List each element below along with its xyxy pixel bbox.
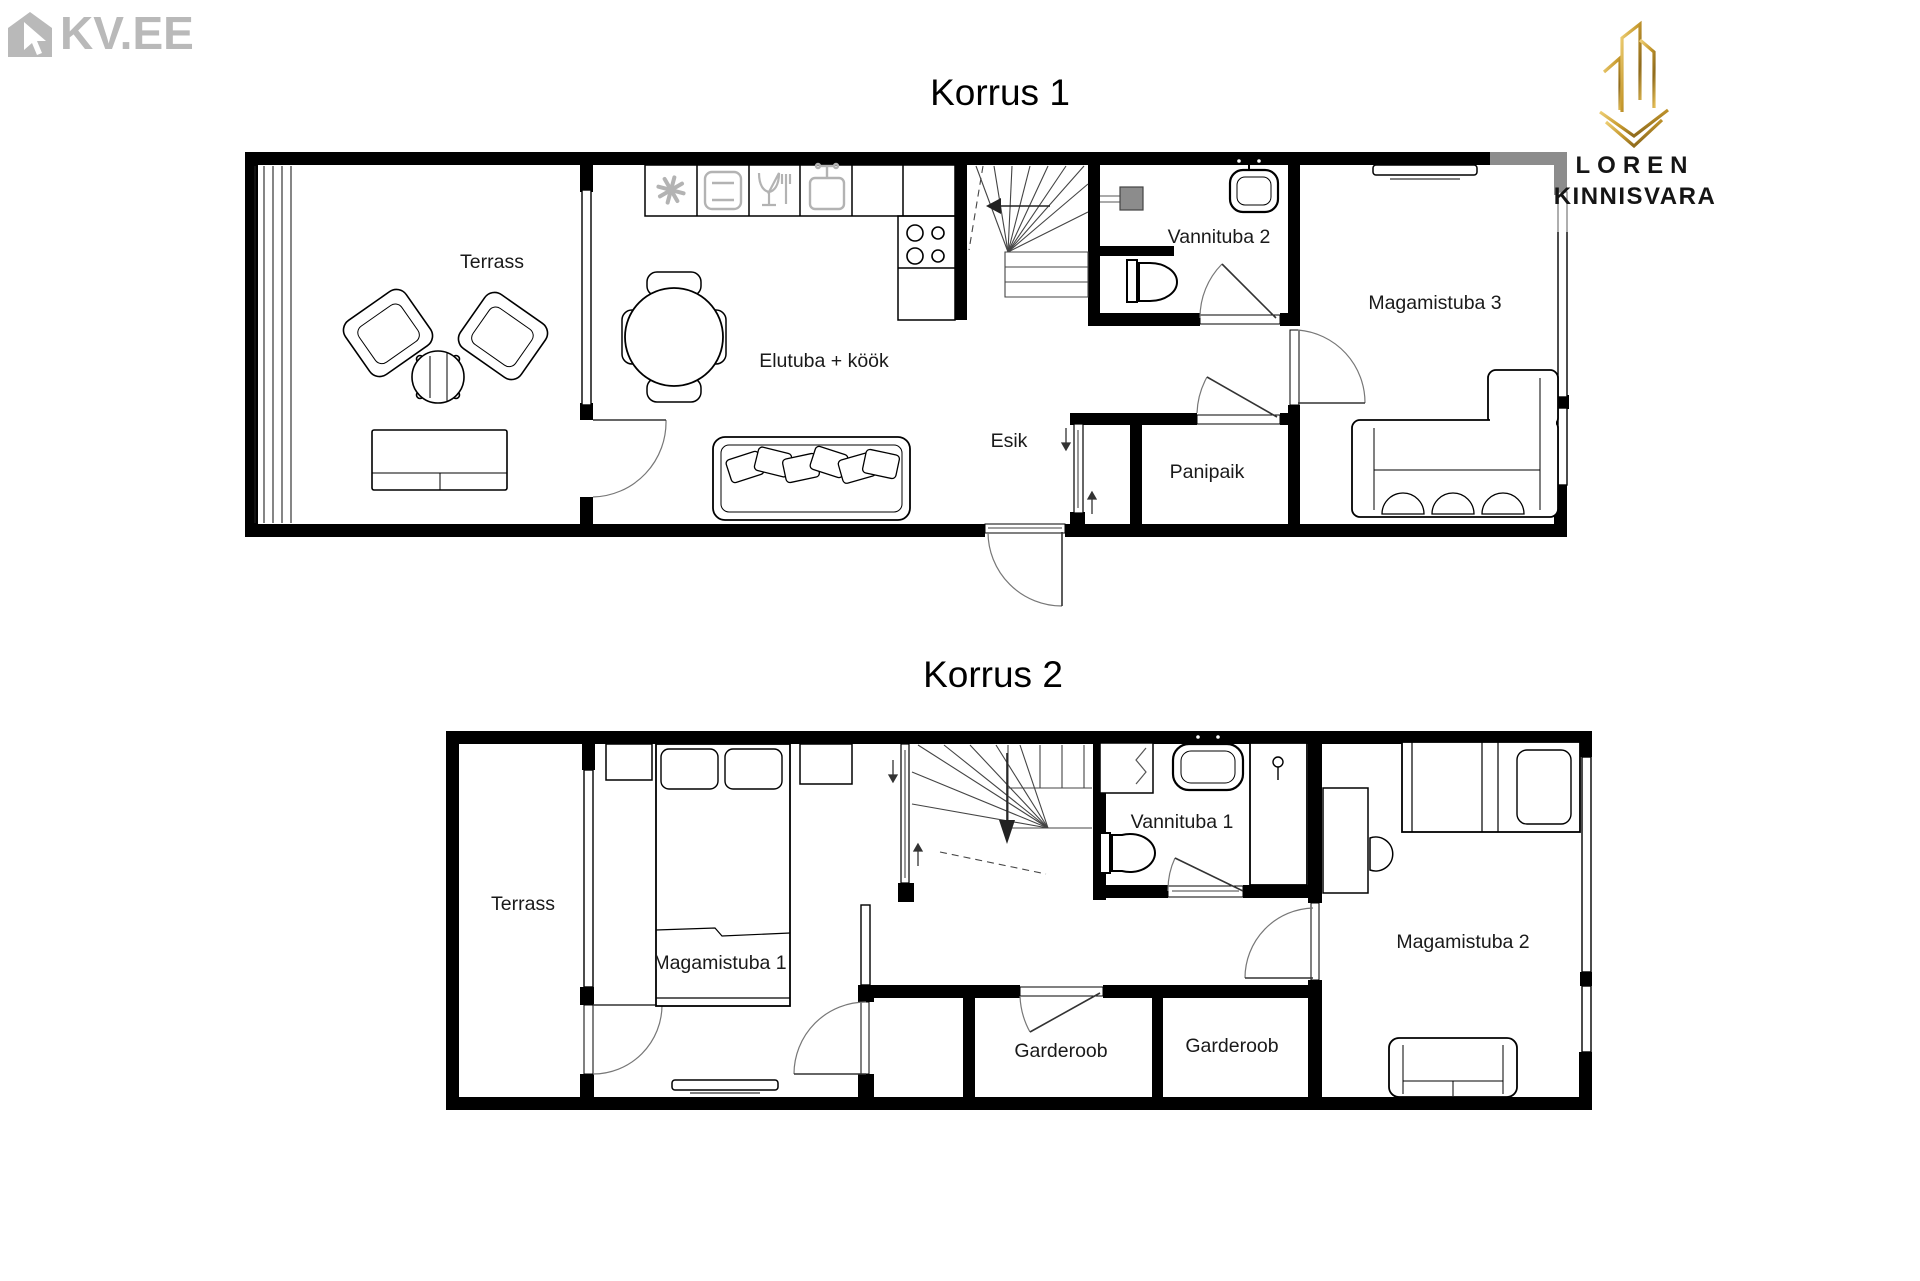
bedroom3-door [1290,330,1365,405]
kvee-logo-text: KV.EE [60,10,194,56]
terrace2-door [584,1005,662,1074]
oven-icon [705,172,741,209]
dining-table [625,288,723,386]
bathroom-cabinet [1250,743,1307,885]
room-label-panipaik: Panipaik [1170,461,1245,483]
desk-bedroom2 [1323,788,1368,893]
room-label-magamistuba1: Magamistuba 1 [653,952,786,974]
bathroom1-door [1168,858,1243,897]
storage-door [1197,377,1280,424]
hob-burners-icon [907,225,944,264]
room-label-vannituba2: Vannituba 2 [1168,226,1271,248]
bedroom1-door [794,1002,869,1074]
room-label-terrass-f2: Terrass [491,893,555,915]
floor2-plan: Terrass Magamistuba 1 Vannituba 1 Garder… [446,731,1592,1110]
slide-up-arrow-icon-f2 [914,844,922,851]
toilet-floor1 [1127,260,1177,302]
sofa-bedroom2 [1389,1038,1517,1097]
agency-logo-line1: LOREN [1490,152,1780,180]
kvee-logo: KV.EE [6,8,194,58]
room-label-living-kitchen: Elutuba + köök [759,350,889,372]
corner-sofa-bedroom3 [1352,370,1558,517]
bathroom2-door [1200,264,1280,324]
sofa-living-room [713,437,910,520]
sink-icon [810,164,844,209]
single-bed-bedroom2 [1402,742,1580,832]
room-label-garderoob-right: Garderoob [1185,1035,1278,1057]
floor2-title: Korrus 2 [923,654,1063,696]
window-right-upper-f2 [1582,757,1591,972]
desk-chair-bedroom2 [1370,837,1393,871]
terrace-deck-slats [255,166,291,523]
esik-sliding-door [1062,424,1096,514]
entrance-door [985,524,1065,606]
room-label-garderoob-left: Garderoob [1014,1040,1107,1062]
nightstand-right [800,744,852,784]
window-terrace-divider [582,190,591,405]
window-terrace-divider-f2 [584,770,593,987]
window-right-lower [1558,408,1567,485]
nightstand-left [606,744,652,780]
room-label-magamistuba3: Magamistuba 3 [1368,292,1501,314]
agency-logo-line2: KINNISVARA [1490,183,1780,211]
bedroom1-sliding-partition [889,744,922,883]
slide-up-arrow-icon [1088,492,1096,499]
shower-head-icon [1100,187,1143,210]
hanger-icon [1273,757,1283,767]
stairs-floor2 [912,745,1092,874]
floor1-plan: Terrass Elutuba + köök Esik Vannituba 2 … [245,152,1569,606]
window-right-lower-f2 [1582,986,1591,1052]
slide-down-arrow-icon-f2 [889,775,897,782]
room-label-esik: Esik [991,430,1028,452]
stairs-floor1 [969,166,1088,297]
stairs-down-arrow-icon-f2 [999,820,1015,844]
toilet-floor2 [1100,833,1155,873]
tv-floor2 [672,1080,778,1093]
shower-stall-floor2 [1100,743,1153,793]
glass-partition-lower [861,905,870,985]
tv-floor1 [1373,165,1477,179]
slide-down-arrow-icon [1062,443,1070,450]
bedroom2-door [1245,903,1319,980]
terrace-bench [372,430,507,490]
agency-logo: LOREN KINNISVARA [1490,10,1780,211]
room-label-terrass-f1: Terrass [460,251,524,273]
dishwasher-icon [759,173,790,205]
room-label-magamistuba2: Magamistuba 2 [1396,931,1529,953]
kvee-house-icon [6,8,54,58]
terrace-round-table [412,351,464,403]
room-label-vannituba1: Vannituba 1 [1131,811,1234,833]
terrace-door [593,420,666,497]
fridge-freezer-icon [655,174,687,206]
wardrobe-left-door [1020,987,1103,1032]
terrace-armchair-right [454,288,552,385]
washbasin-floor1 [1230,159,1278,212]
floor1-title: Korrus 1 [930,72,1070,114]
floorplan-page: Terrass Elutuba + köök Esik Vannituba 2 … [0,0,1920,1281]
agency-building-icon [1590,10,1680,150]
